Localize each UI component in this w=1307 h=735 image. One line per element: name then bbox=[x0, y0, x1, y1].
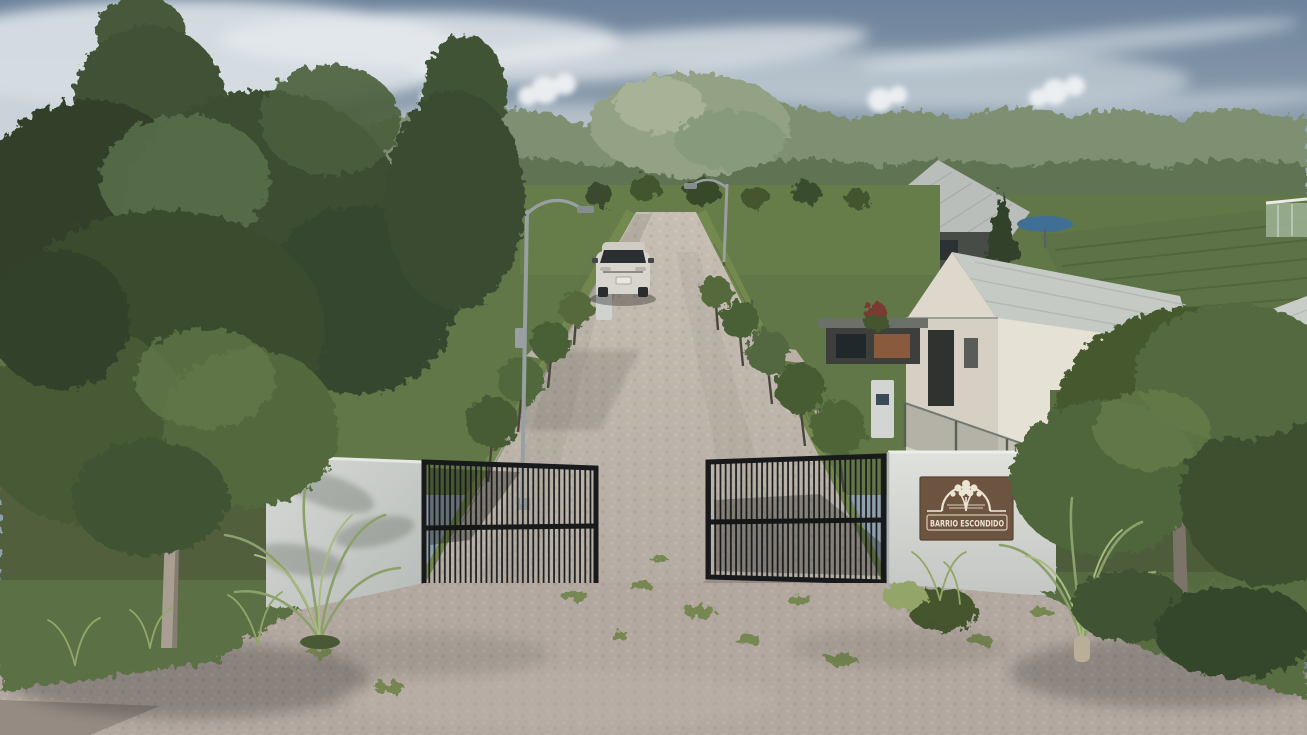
entrance-sign: BARRIO ESCONDIDO bbox=[920, 477, 1013, 540]
mailbox-post-right bbox=[871, 380, 894, 438]
scene-canvas: BARRIO ESCONDIDO bbox=[0, 0, 1307, 735]
entrance-render: BARRIO ESCONDIDO bbox=[0, 0, 1307, 735]
gate-right bbox=[708, 456, 884, 582]
sign-title: BARRIO ESCONDIDO bbox=[930, 520, 1004, 530]
greenhouse bbox=[1266, 199, 1307, 237]
tall-silver-tree bbox=[590, 73, 790, 177]
gate-left bbox=[424, 462, 596, 597]
